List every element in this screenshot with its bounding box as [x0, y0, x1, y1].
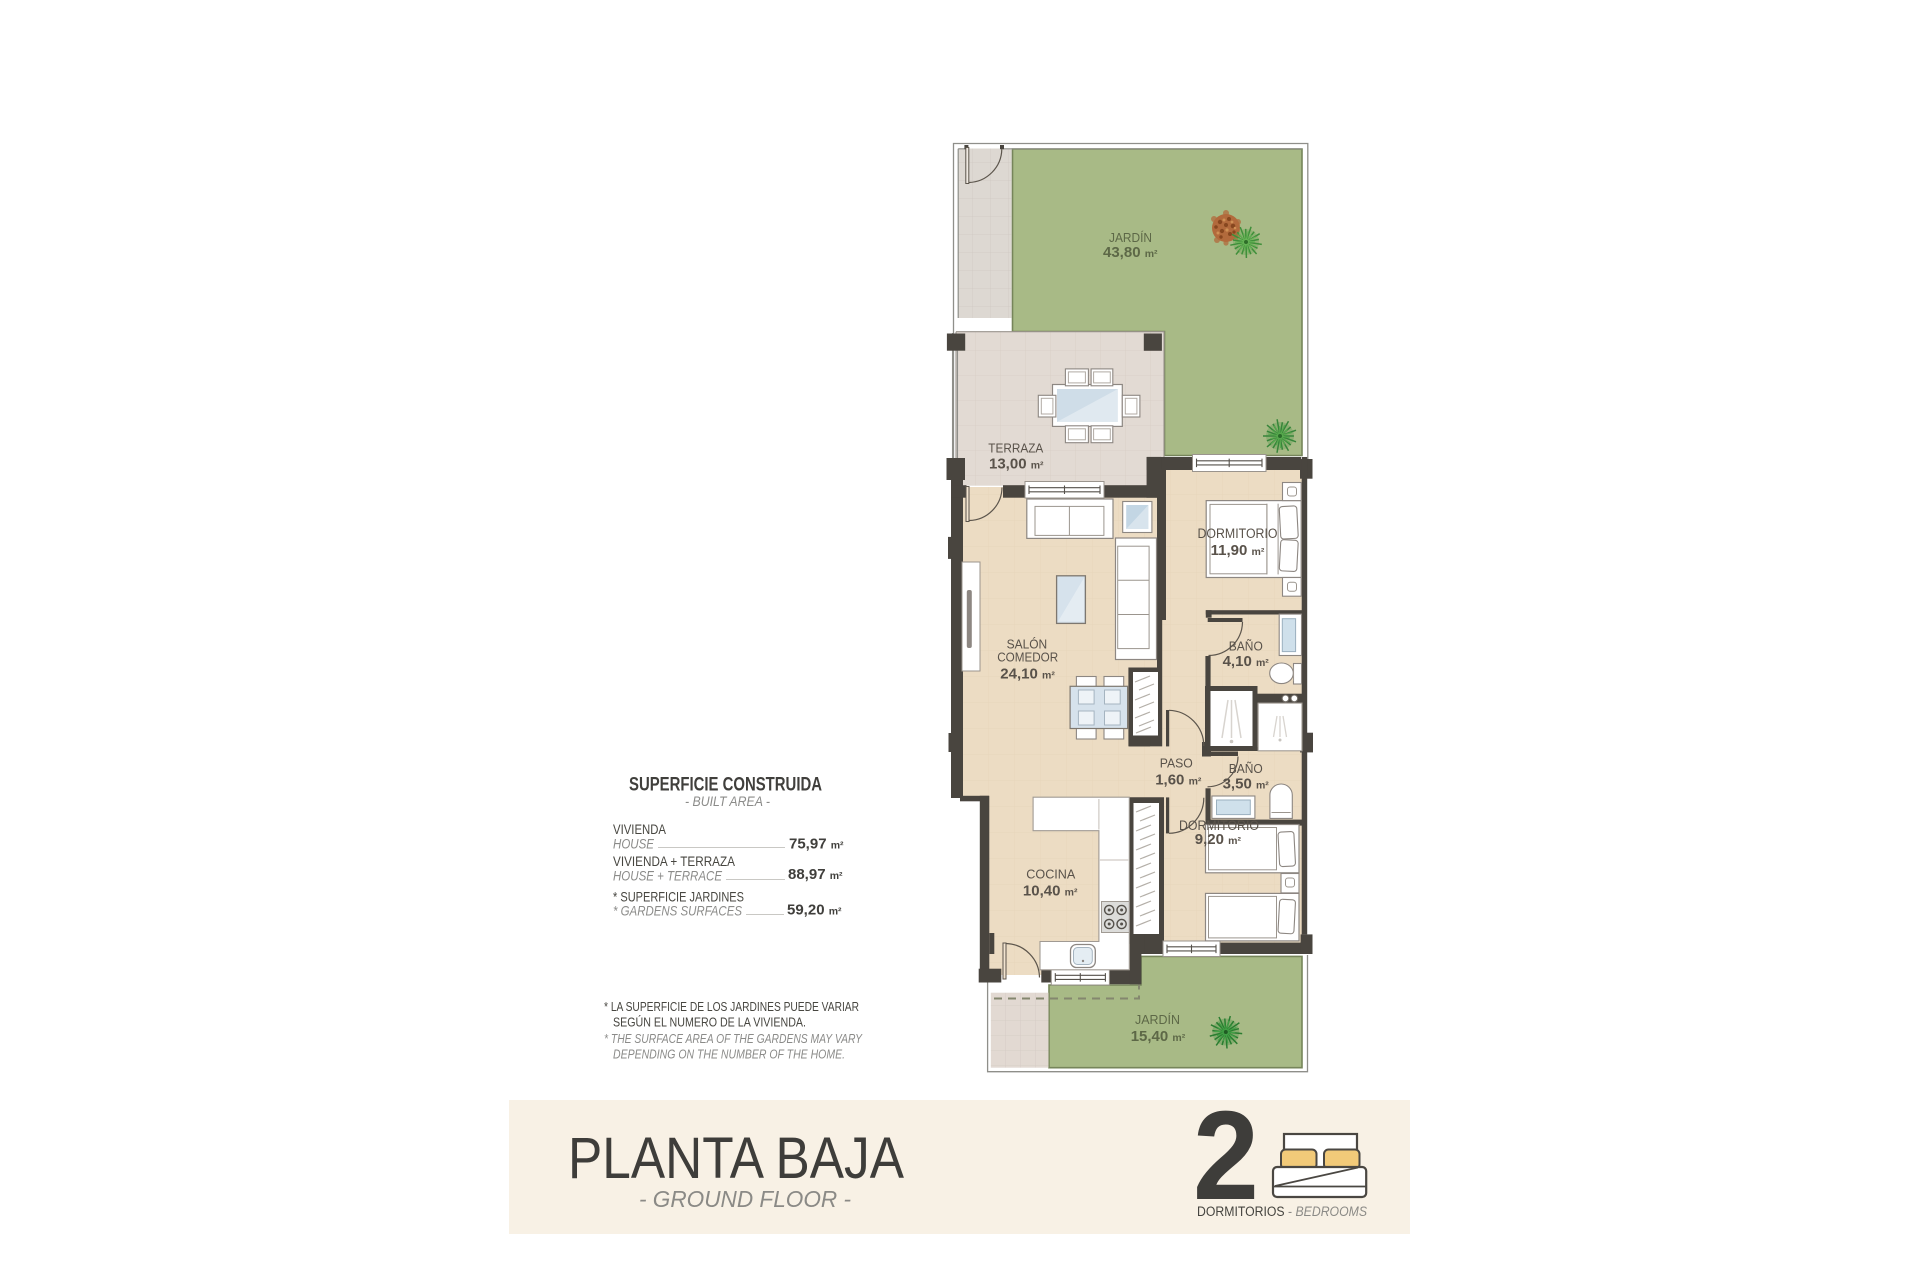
svg-text:- BUILT AREA -: - BUILT AREA -	[685, 794, 770, 809]
svg-text:SUPERFICIE CONSTRUIDA: SUPERFICIE CONSTRUIDA	[629, 775, 822, 796]
svg-text:DORMITORIO: DORMITORIO	[1198, 526, 1278, 541]
svg-text:- GROUND FLOOR -: - GROUND FLOOR -	[639, 1186, 851, 1212]
svg-text:COMEDOR: COMEDOR	[997, 650, 1058, 665]
svg-text:JARDÍN: JARDÍN	[1135, 1012, 1180, 1027]
svg-text:JARDÍN: JARDÍN	[1109, 230, 1152, 245]
svg-text:BAÑO: BAÑO	[1229, 639, 1263, 654]
svg-text:* GARDENS SURFACES: * GARDENS SURFACES	[613, 903, 743, 919]
svg-text:DORMITORIOS - BEDROOMS: DORMITORIOS - BEDROOMS	[1197, 1204, 1367, 1219]
svg-text:BAÑO: BAÑO	[1229, 761, 1263, 776]
svg-text:PLANTA BAJA: PLANTA BAJA	[568, 1126, 904, 1191]
svg-text:* THE SURFACE AREA OF THE GARD: * THE SURFACE AREA OF THE GARDENS MAY VA…	[604, 1031, 863, 1046]
svg-text:* LA SUPERFICIE DE LOS JARDINE: * LA SUPERFICIE DE LOS JARDINES PUEDE VA…	[604, 999, 859, 1014]
svg-text:HOUSE: HOUSE	[613, 836, 655, 852]
svg-text:HOUSE + TERRACE: HOUSE + TERRACE	[613, 868, 723, 884]
svg-text:PASO: PASO	[1160, 756, 1193, 771]
svg-text:DEPENDING ON THE NUMBER OF THE: DEPENDING ON THE NUMBER OF THE HOME.	[613, 1047, 845, 1062]
svg-text:COCINA: COCINA	[1026, 867, 1075, 882]
svg-text:TERRAZA: TERRAZA	[988, 441, 1043, 456]
svg-text:SEGÚN EL NUMERO DE LA VIVIENDA: SEGÚN EL NUMERO DE LA VIVIENDA.	[613, 1015, 806, 1030]
